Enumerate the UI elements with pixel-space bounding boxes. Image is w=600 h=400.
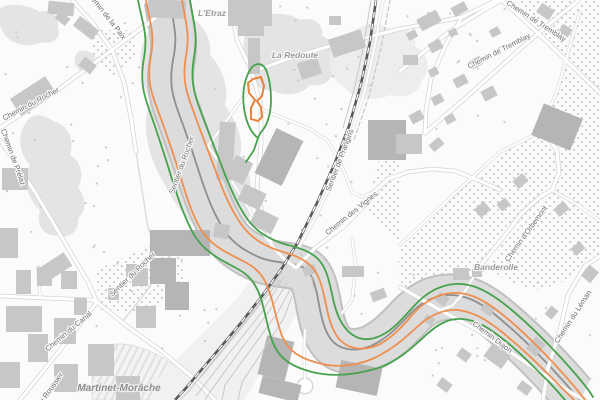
building <box>16 270 31 294</box>
locality-label-banderolle: Banderolle <box>474 262 518 272</box>
map-svg[interactable]: Chemin de la Paix Chemin du Rocher Chemi… <box>0 0 600 400</box>
building <box>396 134 422 154</box>
building <box>342 266 364 277</box>
locality-label-martinet-morache: Martinet-Morâche <box>77 383 161 394</box>
locality-label-la-redoute: La Redoute <box>272 50 319 60</box>
building <box>165 282 189 310</box>
building <box>6 306 42 332</box>
building <box>37 267 52 286</box>
building <box>88 344 114 376</box>
building <box>453 268 469 280</box>
building <box>403 55 418 65</box>
map-canvas[interactable]: Chemin de la Paix Chemin du Rocher Chemi… <box>0 0 600 400</box>
building <box>61 271 77 289</box>
building <box>148 0 187 19</box>
building <box>329 16 341 25</box>
building <box>0 362 20 388</box>
building <box>213 223 230 239</box>
building <box>150 258 176 284</box>
building <box>238 0 264 36</box>
building <box>0 228 18 258</box>
locality-label-l-etraz: L'Etraz <box>198 8 227 18</box>
building <box>136 306 156 328</box>
